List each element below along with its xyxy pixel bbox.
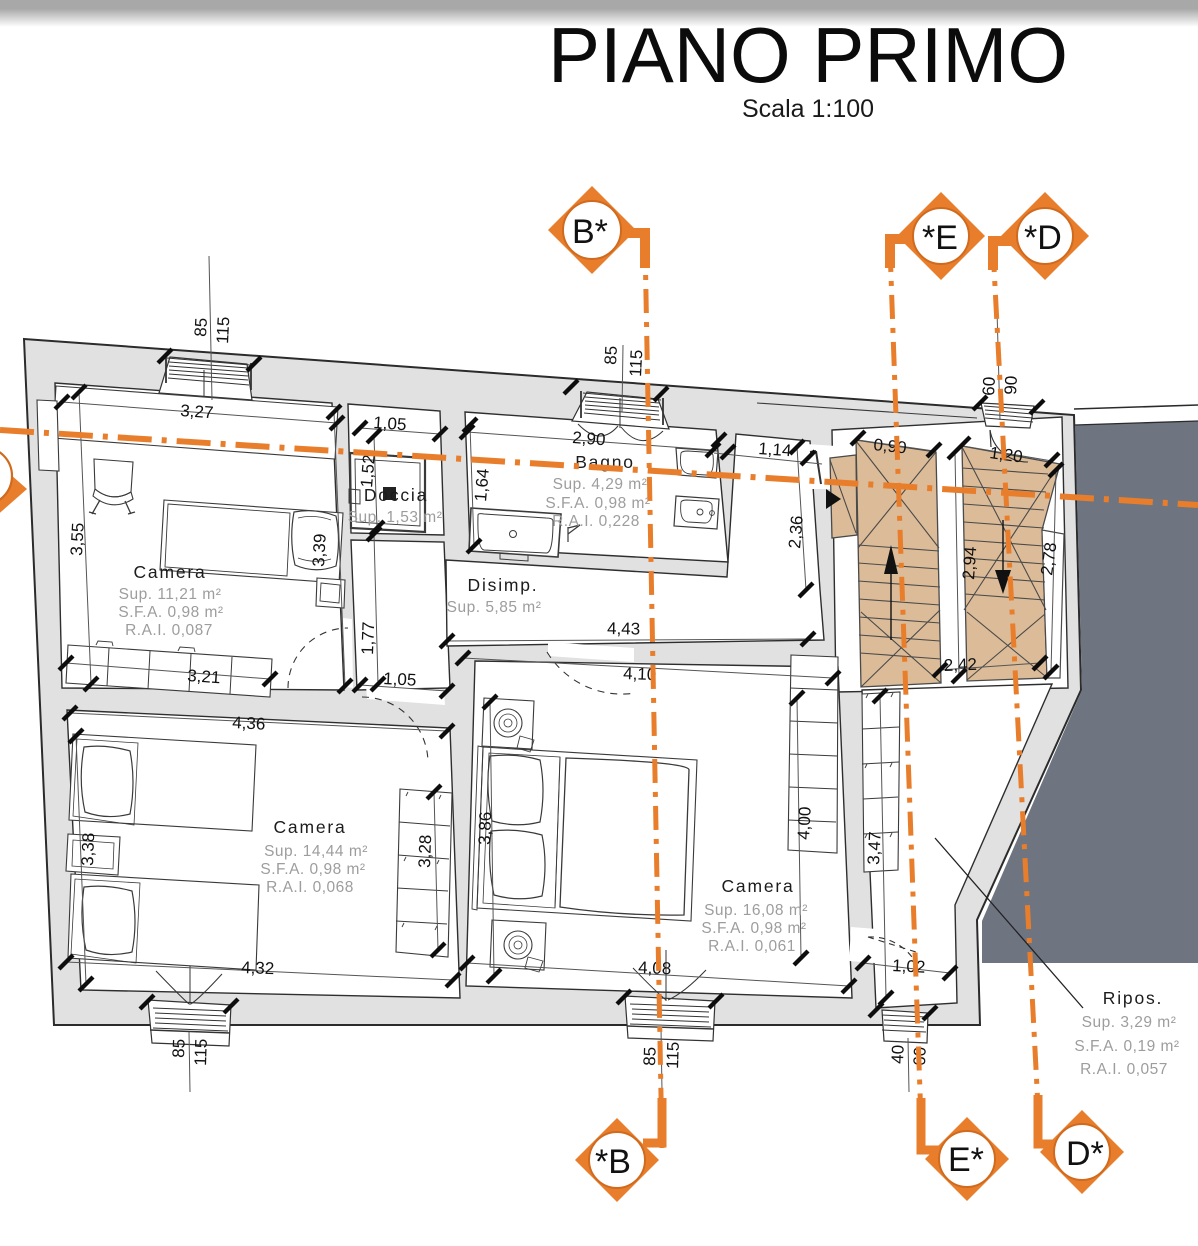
svg-text:*E: *E <box>922 219 958 257</box>
svg-text:85: 85 <box>169 1039 189 1059</box>
svg-text:S.F.A. 0,98 m²: S.F.A. 0,98 m² <box>260 861 365 878</box>
svg-text:Sup. 14,44 m²: Sup. 14,44 m² <box>264 843 368 860</box>
svg-text:Disimp.: Disimp. <box>468 575 539 595</box>
svg-text:1,02: 1,02 <box>892 956 926 977</box>
svg-text:Sup. 5,85 m²: Sup. 5,85 m² <box>447 599 542 616</box>
svg-text:D*: D* <box>1066 1135 1104 1173</box>
svg-text:3,38: 3,38 <box>78 832 98 866</box>
svg-text:Camera: Camera <box>273 817 346 837</box>
svg-text:B*: B* <box>572 213 608 251</box>
svg-text:1,64: 1,64 <box>471 468 493 503</box>
svg-text:Camera: Camera <box>721 876 794 896</box>
svg-text:S.F.A. 0,98 m²: S.F.A. 0,98 m² <box>545 495 650 512</box>
svg-text:Sup. 4,29 m²: Sup. 4,29 m² <box>553 476 648 493</box>
svg-text:Camera: Camera <box>133 562 206 582</box>
svg-text:R.A.I. 0,228: R.A.I. 0,228 <box>552 513 640 530</box>
svg-text:85: 85 <box>191 317 211 337</box>
svg-text:115: 115 <box>213 316 233 344</box>
svg-text:R.A.I. 0,061: R.A.I. 0,061 <box>708 938 796 955</box>
svg-text:1,14: 1,14 <box>758 439 792 460</box>
svg-text:4,36: 4,36 <box>232 713 266 734</box>
svg-text:3,21: 3,21 <box>187 666 221 687</box>
svg-text:R.A.I. 0,087: R.A.I. 0,087 <box>125 622 213 639</box>
svg-text:4,00: 4,00 <box>794 806 815 840</box>
svg-text:Sup. 16,08 m²: Sup. 16,08 m² <box>704 902 808 919</box>
svg-text:4,32: 4,32 <box>241 958 275 978</box>
svg-text:R.A.I. 0,057: R.A.I. 0,057 <box>1080 1061 1168 1078</box>
svg-text:40: 40 <box>888 1045 908 1065</box>
svg-text:3,39: 3,39 <box>309 533 330 567</box>
svg-text:90: 90 <box>1001 375 1021 395</box>
svg-text:S.F.A. 0,19 m²: S.F.A. 0,19 m² <box>1074 1038 1179 1055</box>
svg-text:2,90: 2,90 <box>572 428 606 449</box>
svg-text:Scala 1:100: Scala 1:100 <box>742 95 874 123</box>
svg-text:1,52: 1,52 <box>357 454 379 489</box>
svg-text:E*: E* <box>948 1141 984 1179</box>
svg-text:R.A.I. 0,068: R.A.I. 0,068 <box>266 879 354 896</box>
svg-text:S.F.A. 0,98 m²: S.F.A. 0,98 m² <box>701 920 806 937</box>
svg-text:3,47: 3,47 <box>864 831 885 865</box>
svg-text:115: 115 <box>191 1038 211 1066</box>
svg-text:4,08: 4,08 <box>638 958 672 978</box>
svg-text:85: 85 <box>601 345 621 365</box>
svg-text:3,86: 3,86 <box>475 811 495 845</box>
svg-text:4,43: 4,43 <box>607 619 640 639</box>
svg-text:115: 115 <box>626 349 646 377</box>
svg-text:60: 60 <box>979 376 999 396</box>
svg-text:2,94: 2,94 <box>959 546 980 580</box>
svg-text:85: 85 <box>640 1047 660 1067</box>
svg-text:3,55: 3,55 <box>67 522 88 556</box>
svg-text:1,77: 1,77 <box>358 621 378 655</box>
svg-text:0,90: 0,90 <box>873 435 908 457</box>
svg-text:Sup. 11,21 m²: Sup. 11,21 m² <box>119 586 222 603</box>
svg-text:115: 115 <box>663 1041 683 1069</box>
svg-text:Sup. 3,29 m²: Sup. 3,29 m² <box>1082 1014 1177 1031</box>
svg-text:PIANO PRIMO: PIANO PRIMO <box>548 11 1068 99</box>
svg-text:3,27: 3,27 <box>180 401 214 422</box>
svg-text:1,05: 1,05 <box>383 669 417 690</box>
svg-text:2,42: 2,42 <box>943 655 977 675</box>
svg-text:Doccia: Doccia <box>364 485 428 505</box>
svg-text:3,28: 3,28 <box>415 834 435 868</box>
svg-text:1,05: 1,05 <box>373 413 407 434</box>
svg-text:*B: *B <box>595 1143 631 1181</box>
svg-text:Sup. 1,53 m²: Sup. 1,53 m² <box>348 509 443 526</box>
svg-text:S.F.A. 0,98 m²: S.F.A. 0,98 m² <box>118 604 223 621</box>
svg-text:Ripos.: Ripos. <box>1103 988 1163 1008</box>
svg-text:2,36: 2,36 <box>785 515 807 550</box>
svg-text:*D: *D <box>1024 219 1062 257</box>
